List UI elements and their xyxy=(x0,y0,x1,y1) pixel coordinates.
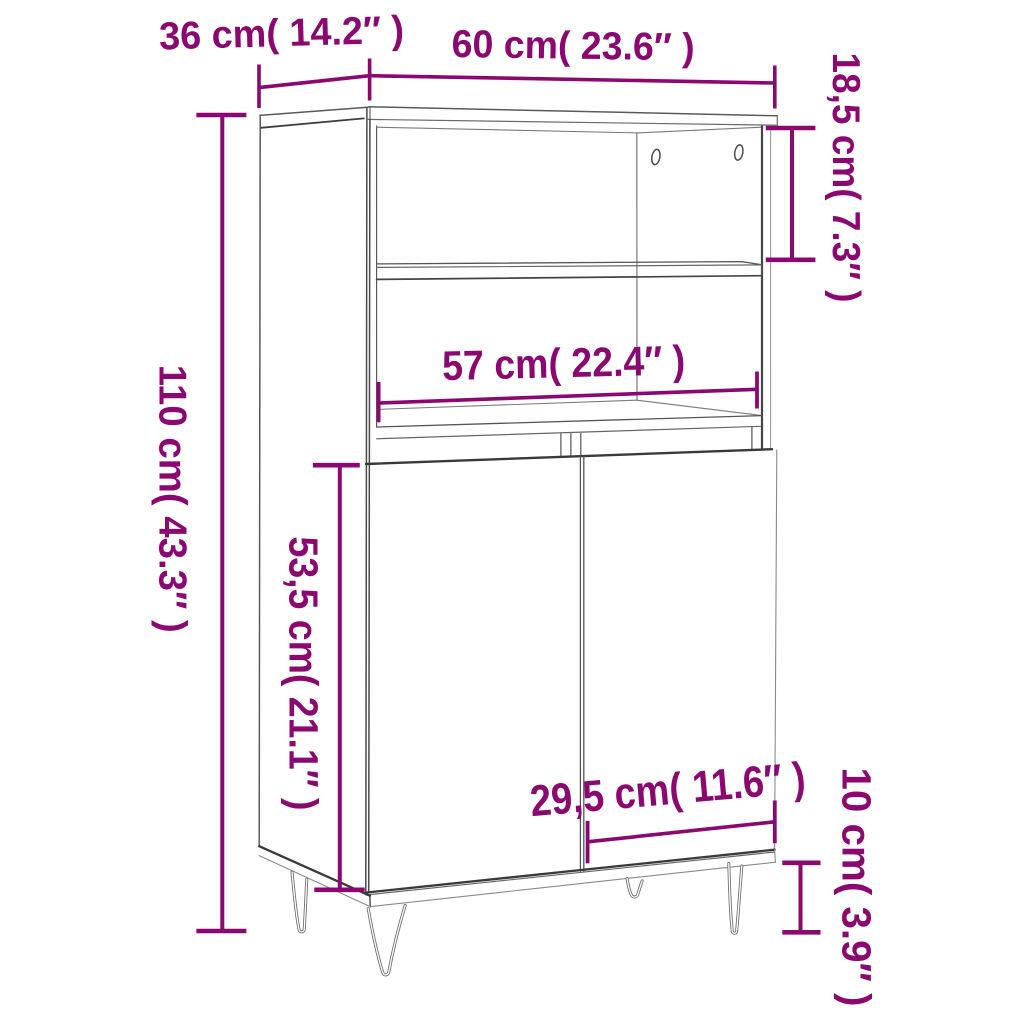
svg-text:10 cm( 3.9″ ): 10 cm( 3.9″ ) xyxy=(834,768,880,1007)
svg-text:53,5 cm( 21.1″ ): 53,5 cm( 21.1″ ) xyxy=(281,537,327,811)
svg-text:18,5 cm( 7.3″ ): 18,5 cm( 7.3″ ) xyxy=(824,53,867,303)
svg-text:60 cm( 23.6″ ): 60 cm( 23.6″ ) xyxy=(451,23,695,69)
svg-text:57 cm( 22.4″ ): 57 cm( 22.4″ ) xyxy=(442,336,686,389)
svg-text:110 cm( 43.3″ ): 110 cm( 43.3″ ) xyxy=(151,365,194,633)
svg-text:36 cm( 14.2″ ): 36 cm( 14.2″ ) xyxy=(159,9,405,59)
